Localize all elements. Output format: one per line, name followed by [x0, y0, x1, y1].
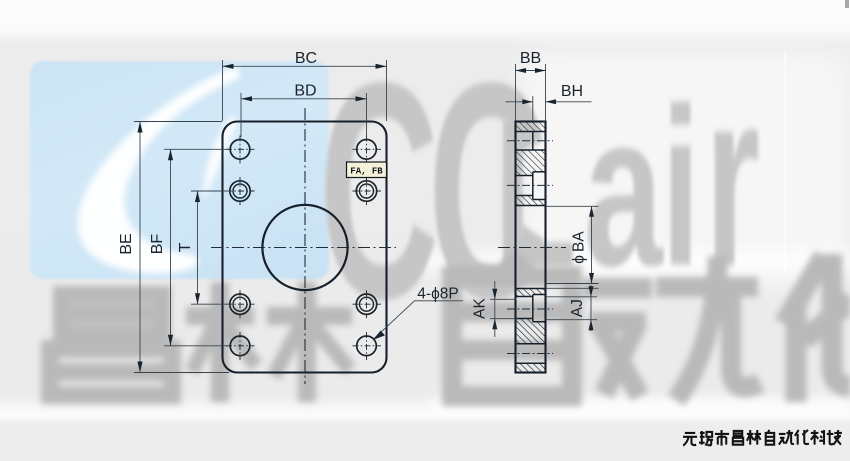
svg-text:BD: BD: [294, 83, 316, 100]
svg-text:BC: BC: [295, 50, 317, 67]
svg-text:4-ϕ8P: 4-ϕ8P: [417, 286, 458, 303]
svg-text:BH: BH: [561, 83, 583, 100]
svg-text:BF: BF: [149, 234, 166, 255]
svg-text:AJ: AJ: [569, 299, 586, 317]
svg-text:FA, FB: FA, FB: [350, 167, 383, 177]
svg-text:T: T: [177, 242, 194, 252]
svg-text:BB: BB: [520, 50, 541, 67]
svg-text:AK: AK: [472, 298, 489, 319]
svg-text:ϕ BA: ϕ BA: [571, 231, 588, 264]
svg-text:BE: BE: [118, 233, 135, 254]
